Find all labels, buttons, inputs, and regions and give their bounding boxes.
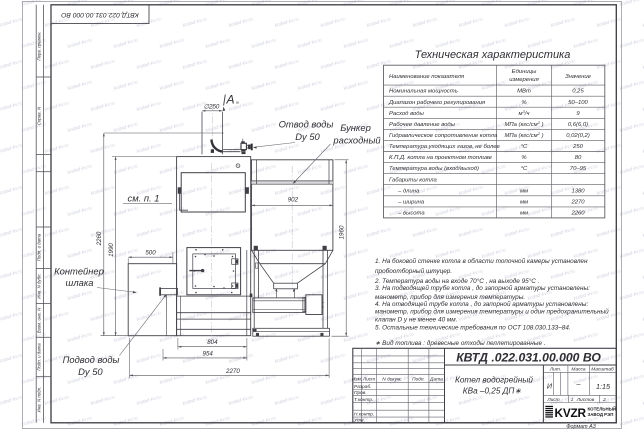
svg-text:kotlad-kv.ru: kotlad-kv.ru <box>21 205 47 218</box>
svg-text:kotlad-kv.ru: kotlad-kv.ru <box>504 16 530 29</box>
svg-text:kotlad-kv.ru: kotlad-kv.ru <box>44 142 70 155</box>
svg-text:kotlad-kv.ru: kotlad-kv.ru <box>0 331 1 344</box>
svg-text:kotlad-kv.ru: kotlad-kv.ru <box>343 79 369 92</box>
svg-text:м3/ч: м3/ч <box>519 109 530 117</box>
svg-text:kotlad-kv.ru: kotlad-kv.ru <box>90 394 116 407</box>
svg-text:kotlad-kv.ru: kotlad-kv.ru <box>596 100 622 113</box>
svg-text:kotlad-kv.ru: kotlad-kv.ru <box>113 79 139 92</box>
svg-text:kotlad-kv.ru: kotlad-kv.ru <box>0 268 24 281</box>
svg-text:kotlad-kv.ru: kotlad-kv.ru <box>136 310 162 323</box>
svg-text:kotlad-kv.ru: kotlad-kv.ru <box>596 184 622 197</box>
svg-text:Масса: Масса <box>571 367 586 373</box>
svg-text:kotlad-kv.ru: kotlad-kv.ru <box>159 37 185 50</box>
svg-text:Бункер: Бункер <box>340 122 371 133</box>
svg-text:kotlad-kv.ru: kotlad-kv.ru <box>619 163 644 176</box>
svg-text:Перв. примен.: Перв. примен. <box>37 31 42 60</box>
svg-text:kotlad-kv.ru: kotlad-kv.ru <box>596 268 622 281</box>
svg-text:Наименование показателя: Наименование показателя <box>389 74 465 80</box>
svg-text:Диапазон рабочего регулировани: Диапазон рабочего регулирования <box>388 100 486 106</box>
svg-text:kotlad-kv.ru: kotlad-kv.ru <box>251 331 277 344</box>
svg-text:шлака: шлака <box>66 277 94 288</box>
svg-text:kotlad-kv.ru: kotlad-kv.ru <box>0 163 1 176</box>
svg-text:kotlad-kv.ru: kotlad-kv.ru <box>619 331 644 344</box>
svg-text:Номинальная мощность: Номинальная мощность <box>389 89 458 95</box>
svg-text:kotlad-kv.ru: kotlad-kv.ru <box>0 0 1 8</box>
svg-text:kotlad-kv.ru: kotlad-kv.ru <box>412 226 438 239</box>
svg-text:Пров.: Пров. <box>354 390 367 396</box>
svg-text:Масштаб: Масштаб <box>591 367 614 373</box>
svg-text:kotlad-kv.ru: kotlad-kv.ru <box>136 100 162 113</box>
svg-text:kotlad-kv.ru: kotlad-kv.ru <box>182 310 208 323</box>
svg-text:КВа –0,25 ДП∗: КВа –0,25 ДП∗ <box>463 387 522 396</box>
svg-text:902: 902 <box>288 196 299 203</box>
svg-text:kotlad-kv.ru: kotlad-kv.ru <box>274 184 300 197</box>
svg-text:К.П.Д. котла на проектном топл: К.П.Д. котла на проектном топливе <box>389 155 493 161</box>
svg-text:kotlad-kv.ru: kotlad-kv.ru <box>596 16 622 29</box>
svg-text:kotlad-kv.ru: kotlad-kv.ru <box>251 289 277 302</box>
svg-text:расходный: расходный <box>332 135 381 146</box>
svg-text:954: 954 <box>203 350 214 357</box>
svg-text:Подвод воды: Подвод воды <box>63 354 120 365</box>
svg-text:kotlad-kv.ru: kotlad-kv.ru <box>481 79 507 92</box>
svg-text:kotlad-kv.ru: kotlad-kv.ru <box>113 247 139 260</box>
svg-text:kotlad-kv.ru: kotlad-kv.ru <box>44 184 70 197</box>
svg-text:kotlad-kv.ru: kotlad-kv.ru <box>366 16 392 29</box>
svg-text:kotlad-kv.ru: kotlad-kv.ru <box>320 16 346 29</box>
svg-text:kotlad-kv.ru: kotlad-kv.ru <box>297 205 323 218</box>
svg-text:500: 500 <box>145 250 156 257</box>
svg-text:80: 80 <box>575 155 582 161</box>
svg-text:kotlad-kv.ru: kotlad-kv.ru <box>343 163 369 176</box>
svg-text:kotlad-kv.ru: kotlad-kv.ru <box>90 184 116 197</box>
svg-text:И: И <box>547 382 553 391</box>
svg-text:kotlad-kv.ru: kotlad-kv.ru <box>0 289 1 302</box>
svg-text:Единицы: Единицы <box>512 69 537 75</box>
svg-text:kotlad-kv.ru: kotlad-kv.ru <box>458 226 484 239</box>
svg-text:kotlad-kv.ru: kotlad-kv.ru <box>550 268 576 281</box>
svg-text:kotlad-kv.ru: kotlad-kv.ru <box>320 58 346 71</box>
svg-text:kotlad-kv.ru: kotlad-kv.ru <box>320 268 346 281</box>
svg-text:kotlad-kv.ru: kotlad-kv.ru <box>182 394 208 407</box>
svg-text:kotlad-kv.ru: kotlad-kv.ru <box>251 79 277 92</box>
svg-text:Лист: Лист <box>362 377 375 383</box>
svg-text:kotlad-kv.ru: kotlad-kv.ru <box>550 226 576 239</box>
svg-text:ш: ш <box>236 100 240 105</box>
svg-text:kotlad-kv.ru: kotlad-kv.ru <box>136 352 162 365</box>
svg-text:манометр, прибор для измерени: манометр, прибор для измерения температу… <box>375 308 609 316</box>
svg-text:3. На подводящей трубе котла: 3. На подводящей трубе котла , до запорн… <box>375 284 590 292</box>
svg-text:– ширина: – ширина <box>397 199 425 205</box>
svg-text:kotlad-kv.ru: kotlad-kv.ru <box>44 394 70 407</box>
svg-text:kotlad-kv.ru: kotlad-kv.ru <box>0 394 24 407</box>
svg-text:kotlad-kv.ru: kotlad-kv.ru <box>619 247 644 260</box>
svg-text:Лист: Лист <box>546 397 559 403</box>
svg-text:kotlad-kv.ru: kotlad-kv.ru <box>205 79 231 92</box>
svg-text:kotlad-kv.ru: kotlad-kv.ru <box>274 16 300 29</box>
svg-text:kotlad-kv.ru: kotlad-kv.ru <box>596 226 622 239</box>
svg-text:kotlad-kv.ru: kotlad-kv.ru <box>113 415 139 428</box>
svg-text:KVZR: KVZR <box>555 406 587 420</box>
svg-text:∗ Вид топлива : древесные от: ∗ Вид топлива : древесные отходы пеллети… <box>375 339 546 347</box>
svg-text:kotlad-kv.ru: kotlad-kv.ru <box>67 163 93 176</box>
svg-text:kotlad-kv.ru: kotlad-kv.ru <box>113 37 139 50</box>
svg-text:kotlad-kv.ru: kotlad-kv.ru <box>21 163 47 176</box>
svg-text:Рабочее давление воды: Рабочее давление воды <box>389 122 456 128</box>
svg-text:Листов: Листов <box>576 397 595 403</box>
svg-text:kotlad-kv.ru: kotlad-kv.ru <box>228 58 254 71</box>
svg-text:kotlad-kv.ru: kotlad-kv.ru <box>619 0 644 8</box>
svg-text:kotlad-kv.ru: kotlad-kv.ru <box>205 37 231 50</box>
svg-text:kotlad-kv.ru: kotlad-kv.ru <box>21 79 47 92</box>
svg-text:kotlad-kv.ru: kotlad-kv.ru <box>44 100 70 113</box>
svg-text:4. На отводящей трубе котла ,: 4. На отводящей трубе котла , до запорно… <box>375 300 588 308</box>
svg-text:kotlad-kv.ru: kotlad-kv.ru <box>343 289 369 302</box>
svg-text:5. Остальные технические треб: 5. Остальные технические требования по О… <box>375 323 571 331</box>
svg-text:kotlad-kv.ru: kotlad-kv.ru <box>0 184 24 197</box>
svg-text:kotlad-kv.ru: kotlad-kv.ru <box>205 163 231 176</box>
svg-text:0,6(6,0): 0,6(6,0) <box>568 122 588 128</box>
svg-text:kotlad-kv.ru: kotlad-kv.ru <box>182 16 208 29</box>
svg-text:kotlad-kv.ru: kotlad-kv.ru <box>274 142 300 155</box>
svg-text:kotlad-kv.ru: kotlad-kv.ru <box>320 352 346 365</box>
svg-text:kotlad-kv.ru: kotlad-kv.ru <box>228 352 254 365</box>
svg-text:kotlad-kv.ru: kotlad-kv.ru <box>182 184 208 197</box>
svg-text:kotlad-kv.ru: kotlad-kv.ru <box>504 226 530 239</box>
svg-text:kotlad-kv.ru: kotlad-kv.ru <box>251 415 277 428</box>
svg-text:А: А <box>225 93 234 107</box>
svg-text:%: % <box>521 155 526 161</box>
svg-text:kotlad-kv.ru: kotlad-kv.ru <box>136 226 162 239</box>
svg-text:kotlad-kv.ru: kotlad-kv.ru <box>67 37 93 50</box>
svg-text:∅250: ∅250 <box>204 103 220 110</box>
svg-text:kotlad-kv.ru: kotlad-kv.ru <box>67 289 93 302</box>
svg-text:kotlad-kv.ru: kotlad-kv.ru <box>619 415 644 428</box>
svg-text:kotlad-kv.ru: kotlad-kv.ru <box>136 394 162 407</box>
svg-text:kotlad-kv.ru: kotlad-kv.ru <box>274 352 300 365</box>
svg-text:kotlad-kv.ru: kotlad-kv.ru <box>458 184 484 197</box>
svg-text:ЗАВОД РЭП: ЗАВОД РЭП <box>588 412 614 417</box>
svg-text:kotlad-kv.ru: kotlad-kv.ru <box>251 163 277 176</box>
svg-text:kotlad-kv.ru: kotlad-kv.ru <box>619 37 644 50</box>
svg-text:– высота: – высота <box>397 211 425 217</box>
svg-text:kotlad-kv.ru: kotlad-kv.ru <box>481 415 507 428</box>
svg-text:kotlad-kv.ru: kotlad-kv.ru <box>113 205 139 218</box>
svg-text:Утв.: Утв. <box>354 418 365 424</box>
svg-text:kotlad-kv.ru: kotlad-kv.ru <box>0 79 1 92</box>
svg-text:Изм.: Изм. <box>352 377 362 383</box>
svg-text:kotlad-kv.ru: kotlad-kv.ru <box>0 415 1 428</box>
svg-text:°С: °С <box>521 144 528 150</box>
svg-text:kotlad-kv.ru: kotlad-kv.ru <box>366 100 392 113</box>
svg-text:2270: 2270 <box>225 368 240 375</box>
svg-text:1990: 1990 <box>108 243 115 257</box>
svg-text:2260: 2260 <box>570 211 585 217</box>
svg-text:kotlad-kv.ru: kotlad-kv.ru <box>21 121 47 134</box>
svg-text:kotlad-kv.ru: kotlad-kv.ru <box>366 226 392 239</box>
svg-text:2: 2 <box>602 397 606 403</box>
svg-text:Dy 50: Dy 50 <box>78 366 103 377</box>
svg-text:мм: мм <box>520 188 528 194</box>
svg-text:kotlad-kv.ru: kotlad-kv.ru <box>113 331 139 344</box>
svg-text:kotlad-kv.ru: kotlad-kv.ru <box>182 226 208 239</box>
svg-text:%: % <box>521 100 526 106</box>
svg-text:kotlad-kv.ru: kotlad-kv.ru <box>205 121 231 134</box>
svg-text:kotlad-kv.ru: kotlad-kv.ru <box>0 247 1 260</box>
svg-text:МПа (кгс/см2 ): МПа (кгс/см2 ) <box>504 131 543 139</box>
svg-text:kotlad-kv.ru: kotlad-kv.ru <box>205 289 231 302</box>
svg-text:Температура воды (вход/выход): Температура воды (вход/выход) <box>389 166 479 172</box>
svg-text:Инв. N подл.: Инв. N подл. <box>37 387 42 413</box>
svg-text:70–95: 70–95 <box>570 166 587 172</box>
svg-text:kotlad-kv.ru: kotlad-kv.ru <box>90 58 116 71</box>
svg-text:kotlad-kv.ru: kotlad-kv.ru <box>297 163 323 176</box>
svg-text:kotlad-kv.ru: kotlad-kv.ru <box>159 415 185 428</box>
svg-text:Т.контр.: Т.контр. <box>354 397 373 403</box>
svg-text:kotlad-kv.ru: kotlad-kv.ru <box>67 121 93 134</box>
svg-text:мм: мм <box>520 211 528 217</box>
svg-text:kotlad-kv.ru: kotlad-kv.ru <box>159 121 185 134</box>
svg-text:kotlad-kv.ru: kotlad-kv.ru <box>343 205 369 218</box>
svg-text:kotlad-kv.ru: kotlad-kv.ru <box>113 121 139 134</box>
svg-text:kotlad-kv.ru: kotlad-kv.ru <box>619 289 644 302</box>
svg-text:Взам. инв. N: Взам. инв. N <box>37 307 42 333</box>
svg-text:kotlad-kv.ru: kotlad-kv.ru <box>458 394 484 407</box>
svg-text:kotlad-kv.ru: kotlad-kv.ru <box>0 121 1 134</box>
svg-text:250: 250 <box>572 144 584 150</box>
svg-text:1. На боковой стенке котла в: 1. На боковой стенке котла в области топ… <box>375 257 588 265</box>
svg-text:kotlad-kv.ru: kotlad-kv.ru <box>67 415 93 428</box>
svg-text:kotlad-kv.ru: kotlad-kv.ru <box>619 121 644 134</box>
svg-text:КВТД .022.031.00.000 ВО: КВТД .022.031.00.000 ВО <box>456 351 601 365</box>
svg-text:kotlad-kv.ru: kotlad-kv.ru <box>297 37 323 50</box>
svg-text:kotlad-kv.ru: kotlad-kv.ru <box>21 415 47 428</box>
svg-text:kotlad-kv.ru: kotlad-kv.ru <box>0 373 1 386</box>
svg-text:2270: 2270 <box>570 199 585 205</box>
svg-text:Значение: Значение <box>565 74 592 80</box>
svg-text:kotlad-kv.ru: kotlad-kv.ru <box>573 37 599 50</box>
svg-text:kotlad-kv.ru: kotlad-kv.ru <box>504 394 530 407</box>
svg-text:манометр, прибор для измерени: манометр, прибор для измерения температу… <box>375 293 525 301</box>
svg-text:kotlad-kv.ru: kotlad-kv.ru <box>274 58 300 71</box>
svg-text:Формат А3: Формат А3 <box>566 424 596 430</box>
svg-text:804: 804 <box>207 339 218 346</box>
svg-text:kotlad-kv.ru: kotlad-kv.ru <box>297 331 323 344</box>
svg-text:kotlad-kv.ru: kotlad-kv.ru <box>90 100 116 113</box>
svg-text:kotlad-kv.ru: kotlad-kv.ru <box>67 79 93 92</box>
svg-text:kotlad-kv.ru: kotlad-kv.ru <box>297 415 323 428</box>
svg-text:kotlad-kv.ru: kotlad-kv.ru <box>228 16 254 29</box>
svg-text:kotlad-kv.ru: kotlad-kv.ru <box>67 205 93 218</box>
svg-text:kotlad-kv.ru: kotlad-kv.ru <box>274 100 300 113</box>
svg-text:1380: 1380 <box>571 188 585 194</box>
svg-text:kotlad-kv.ru: kotlad-kv.ru <box>21 247 47 260</box>
svg-text:kotlad-kv.ru: kotlad-kv.ru <box>274 394 300 407</box>
svg-text:kotlad-kv.ru: kotlad-kv.ru <box>619 205 644 218</box>
svg-text:Dy 50: Dy 50 <box>295 131 320 142</box>
svg-text:kotlad-kv.ru: kotlad-kv.ru <box>573 331 599 344</box>
svg-text:kotlad-kv.ru: kotlad-kv.ru <box>366 58 392 71</box>
svg-text:kotlad-kv.ru: kotlad-kv.ru <box>619 79 644 92</box>
svg-text:9: 9 <box>576 111 580 117</box>
svg-text:N докум.: N докум. <box>382 377 401 383</box>
svg-text:0,02(0,2): 0,02(0,2) <box>566 133 590 139</box>
svg-text:клапан D у не менее 40 мм.: клапан D у не менее 40 мм. <box>375 316 457 323</box>
svg-text:Подп. и дата: Подп. и дата <box>37 233 42 261</box>
svg-text:kotlad-kv.ru: kotlad-kv.ru <box>251 121 277 134</box>
svg-text:Подп.: Подп. <box>412 377 425 383</box>
svg-text:kotlad-kv.ru: kotlad-kv.ru <box>550 142 576 155</box>
svg-text:измерения: измерения <box>509 77 539 83</box>
svg-text:Инв. N дубл.: Инв. N дубл. <box>37 273 42 298</box>
svg-text:kotlad-kv.ru: kotlad-kv.ru <box>159 247 185 260</box>
svg-text:kotlad-kv.ru: kotlad-kv.ru <box>44 310 70 323</box>
svg-text:kotlad-kv.ru: kotlad-kv.ru <box>251 205 277 218</box>
svg-text:kotlad-kv.ru: kotlad-kv.ru <box>343 247 369 260</box>
svg-text:kotlad-kv.ru: kotlad-kv.ru <box>0 142 24 155</box>
svg-text:kotlad-kv.ru: kotlad-kv.ru <box>619 373 644 386</box>
svg-text:kotlad-kv.ru: kotlad-kv.ru <box>67 247 93 260</box>
svg-text:kotlad-kv.ru: kotlad-kv.ru <box>297 289 323 302</box>
svg-text:kotlad-kv.ru: kotlad-kv.ru <box>458 16 484 29</box>
svg-text:kotlad-kv.ru: kotlad-kv.ru <box>228 310 254 323</box>
svg-text:kotlad-kv.ru: kotlad-kv.ru <box>136 58 162 71</box>
svg-text:Справ. N: Справ. N <box>37 106 42 125</box>
svg-text:kotlad-kv.ru: kotlad-kv.ru <box>159 79 185 92</box>
svg-text:Котел водогрейный: Котел водогрейный <box>455 375 533 384</box>
svg-text:Техническая характеристика: Техническая характеристика <box>415 49 571 61</box>
svg-text:kotlad-kv.ru: kotlad-kv.ru <box>44 58 70 71</box>
svg-text:kotlad-kv.ru: kotlad-kv.ru <box>297 247 323 260</box>
svg-text:50–100: 50–100 <box>568 100 588 106</box>
svg-text:Лит.: Лит. <box>549 367 561 373</box>
svg-text:мм: мм <box>520 199 528 205</box>
svg-text:kotlad-kv.ru: kotlad-kv.ru <box>21 373 47 386</box>
svg-text:kotlad-kv.ru: kotlad-kv.ru <box>44 226 70 239</box>
svg-text:kotlad-kv.ru: kotlad-kv.ru <box>389 37 415 50</box>
svg-text:kotlad-kv.ru: kotlad-kv.ru <box>228 184 254 197</box>
svg-text:kotlad-kv.ru: kotlad-kv.ru <box>412 394 438 407</box>
svg-text:1:15: 1:15 <box>596 382 611 391</box>
svg-text:Температура уходящих газов, не: Температура уходящих газов, не более <box>389 144 500 150</box>
svg-text:пробоотборный штуцер.: пробоотборный штуцер. <box>375 267 452 275</box>
svg-text:kotlad-kv.ru: kotlad-kv.ru <box>274 268 300 281</box>
svg-text:– длина: – длина <box>397 188 420 194</box>
svg-text:kotlad-kv.ru: kotlad-kv.ru <box>0 226 24 239</box>
svg-text:Разраб.: Разраб. <box>354 384 371 390</box>
svg-text:kotlad-kv.ru: kotlad-kv.ru <box>182 142 208 155</box>
svg-text:kotlad-kv.ru: kotlad-kv.ru <box>0 16 24 29</box>
svg-text:1: 1 <box>571 397 574 403</box>
svg-text:Расход воды: Расход воды <box>389 111 425 117</box>
svg-text:kotlad-kv.ru: kotlad-kv.ru <box>205 415 231 428</box>
svg-text:Подп. и дата: Подп. и дата <box>37 343 42 371</box>
svg-text:Габариты котла: Габариты котла <box>389 177 437 183</box>
svg-text:kotlad-kv.ru: kotlad-kv.ru <box>366 184 392 197</box>
svg-text:kotlad-kv.ru: kotlad-kv.ru <box>0 205 1 218</box>
svg-text:Отвод воды: Отвод воды <box>279 119 334 130</box>
svg-text:kotlad-kv.ru: kotlad-kv.ru <box>0 310 24 323</box>
svg-text:kotlad-kv.ru: kotlad-kv.ru <box>0 58 24 71</box>
svg-text:kotlad-kv.ru: kotlad-kv.ru <box>0 37 1 50</box>
svg-text:МВт: МВт <box>517 89 531 95</box>
svg-text:kotlad-kv.ru: kotlad-kv.ru <box>136 142 162 155</box>
svg-text:kotlad-kv.ru: kotlad-kv.ru <box>596 142 622 155</box>
svg-text:Дата: Дата <box>429 377 443 383</box>
svg-text:КВТД.022.031.00.000 ВО: КВТД.022.031.00.000 ВО <box>61 11 139 18</box>
svg-text:kotlad-kv.ru: kotlad-kv.ru <box>251 37 277 50</box>
svg-text:см. п. 1: см. п. 1 <box>128 193 160 204</box>
svg-text:kotlad-kv.ru: kotlad-kv.ru <box>67 331 93 344</box>
svg-text:kotlad-kv.ru: kotlad-kv.ru <box>228 394 254 407</box>
svg-text:kotlad-kv.ru: kotlad-kv.ru <box>228 226 254 239</box>
svg-text:kotlad-kv.ru: kotlad-kv.ru <box>0 352 24 365</box>
svg-text:kotlad-kv.ru: kotlad-kv.ru <box>320 310 346 323</box>
svg-text:kotlad-kv.ru: kotlad-kv.ru <box>182 58 208 71</box>
svg-text:kotlad-kv.ru: kotlad-kv.ru <box>274 226 300 239</box>
svg-text:kotlad-kv.ru: kotlad-kv.ru <box>21 37 47 50</box>
svg-text:kotlad-kv.ru: kotlad-kv.ru <box>343 37 369 50</box>
svg-text:Контейнер: Контейнер <box>54 265 104 276</box>
svg-text:kotlad-kv.ru: kotlad-kv.ru <box>320 100 346 113</box>
svg-text:kotlad-kv.ru: kotlad-kv.ru <box>90 310 116 323</box>
svg-text:kotlad-kv.ru: kotlad-kv.ru <box>412 16 438 29</box>
svg-text:kotlad-kv.ru: kotlad-kv.ru <box>136 268 162 281</box>
svg-text:kotlad-kv.ru: kotlad-kv.ru <box>320 394 346 407</box>
svg-text:kotlad-kv.ru: kotlad-kv.ru <box>297 79 323 92</box>
svg-text:Н.контр.: Н.контр. <box>354 412 374 418</box>
svg-text:kotlad-kv.ru: kotlad-kv.ru <box>21 289 47 302</box>
svg-text:kotlad-kv.ru: kotlad-kv.ru <box>0 100 24 113</box>
svg-text:1960: 1960 <box>338 225 345 239</box>
svg-text:kotlad-kv.ru: kotlad-kv.ru <box>113 163 139 176</box>
svg-text:kotlad-kv.ru: kotlad-kv.ru <box>550 16 576 29</box>
svg-text:Гидравлическое сопротивление к: Гидравлическое сопротивление котла <box>389 133 498 139</box>
svg-text:kotlad-kv.ru: kotlad-kv.ru <box>90 142 116 155</box>
svg-text:2260: 2260 <box>96 231 103 246</box>
svg-text:2. Температура воды на входе: 2. Температура воды на входе 70°С , на в… <box>374 277 539 285</box>
svg-text:°С: °С <box>521 166 528 172</box>
svg-text:kotlad-kv.ru: kotlad-kv.ru <box>596 58 622 71</box>
svg-text:–: – <box>575 380 581 389</box>
svg-text:0,25: 0,25 <box>572 89 584 95</box>
